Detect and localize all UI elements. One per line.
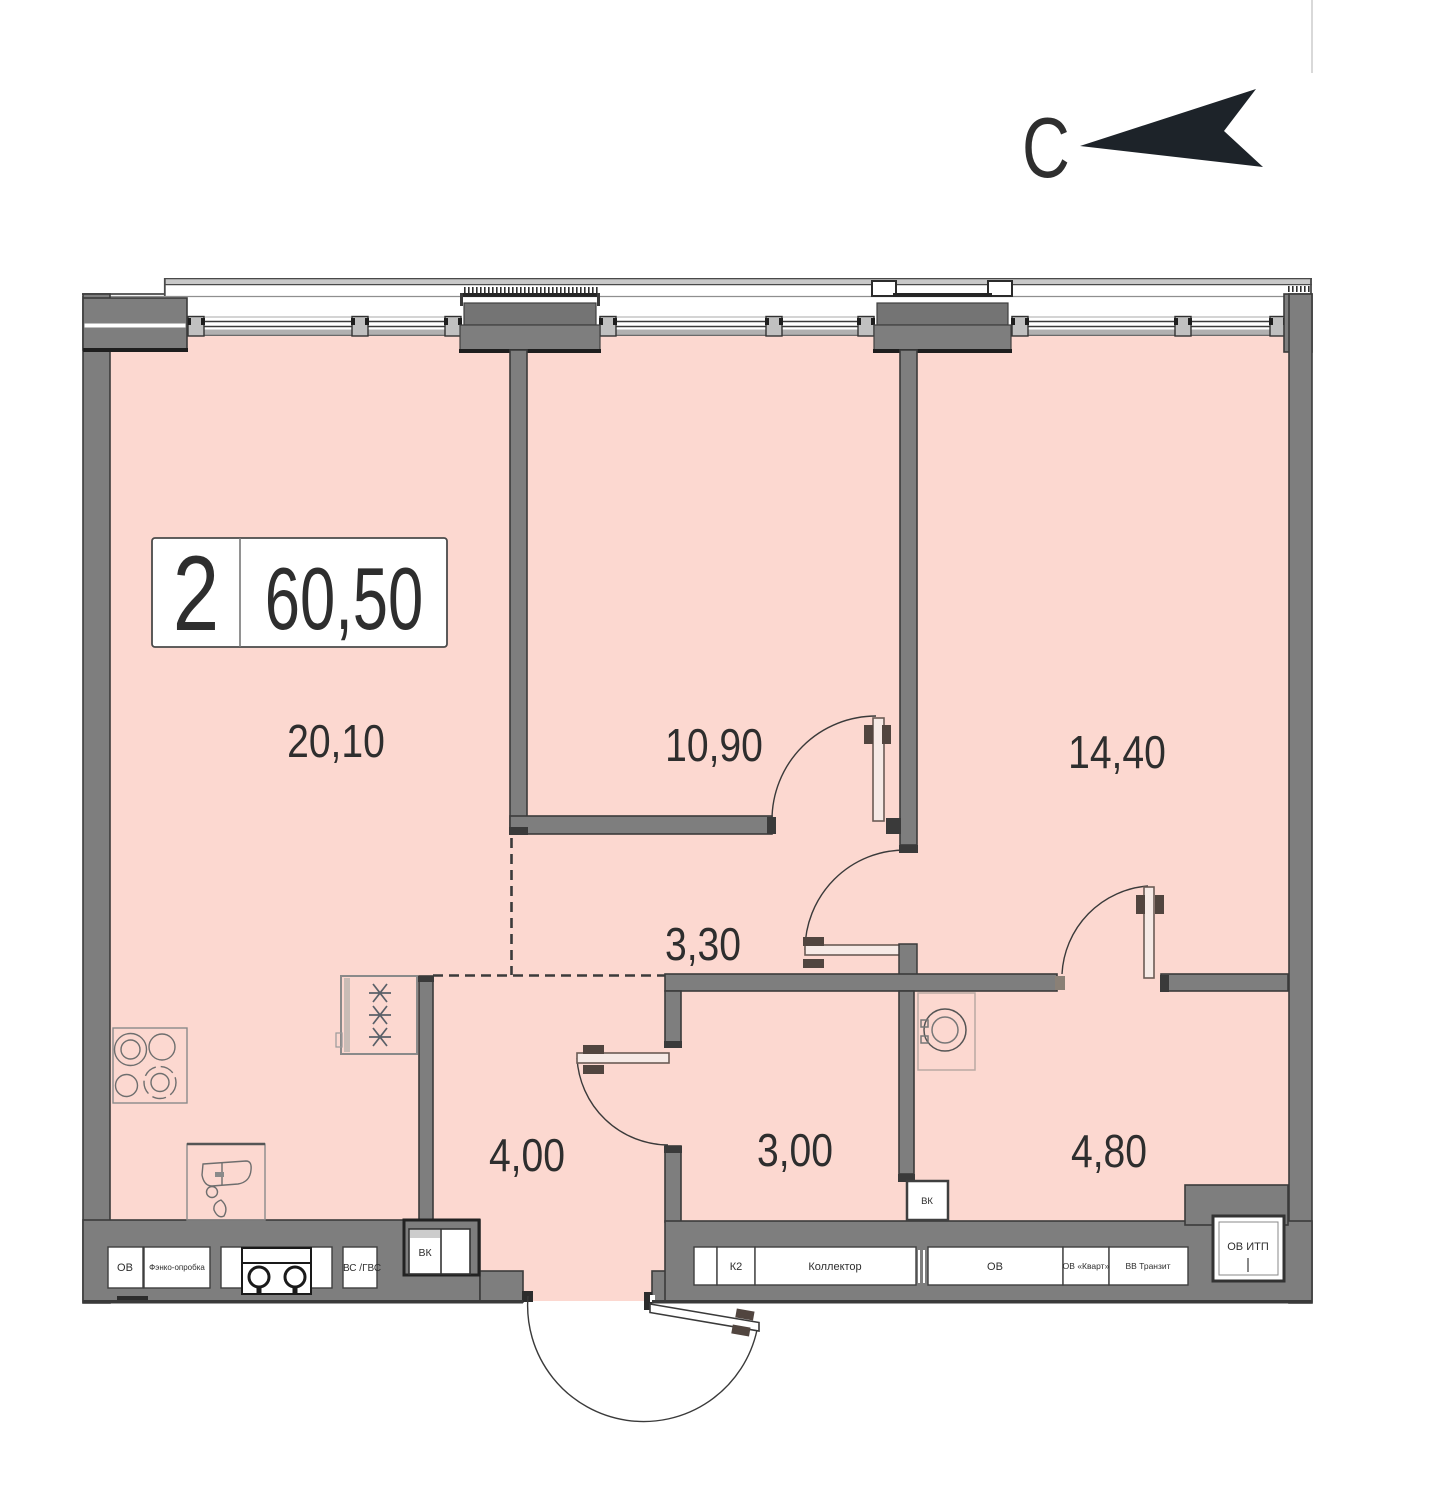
svg-text:4,80: 4,80 <box>1071 1126 1147 1178</box>
svg-text:Фэнко-опробка: Фэнко-опробка <box>149 1263 205 1272</box>
svg-text:К2: К2 <box>730 1261 743 1273</box>
svg-text:60,50: 60,50 <box>265 551 424 649</box>
svg-text:20,10: 20,10 <box>287 716 385 768</box>
svg-text:3,30: 3,30 <box>665 919 741 971</box>
svg-text:Коллектор: Коллектор <box>808 1261 861 1273</box>
svg-text:С: С <box>1022 101 1070 196</box>
svg-text:10,90: 10,90 <box>665 720 763 772</box>
svg-text:ОВ ИТП: ОВ ИТП <box>1227 1241 1269 1253</box>
svg-text:ВК: ВК <box>921 1196 933 1207</box>
svg-text:4,00: 4,00 <box>489 1130 565 1182</box>
svg-text:14,40: 14,40 <box>1068 727 1166 779</box>
svg-text:ОВ «Кварт»: ОВ «Кварт» <box>1063 1261 1110 1271</box>
svg-text:ВВ Транзит: ВВ Транзит <box>1125 1261 1170 1271</box>
svg-text:ВК: ВК <box>418 1247 432 1259</box>
svg-text:ОВ: ОВ <box>117 1262 133 1274</box>
svg-text:3,00: 3,00 <box>757 1125 833 1177</box>
svg-text:ОВ: ОВ <box>987 1261 1003 1273</box>
svg-text:ВС /ГВС: ВС /ГВС <box>343 1263 381 1274</box>
svg-text:2: 2 <box>173 534 219 653</box>
